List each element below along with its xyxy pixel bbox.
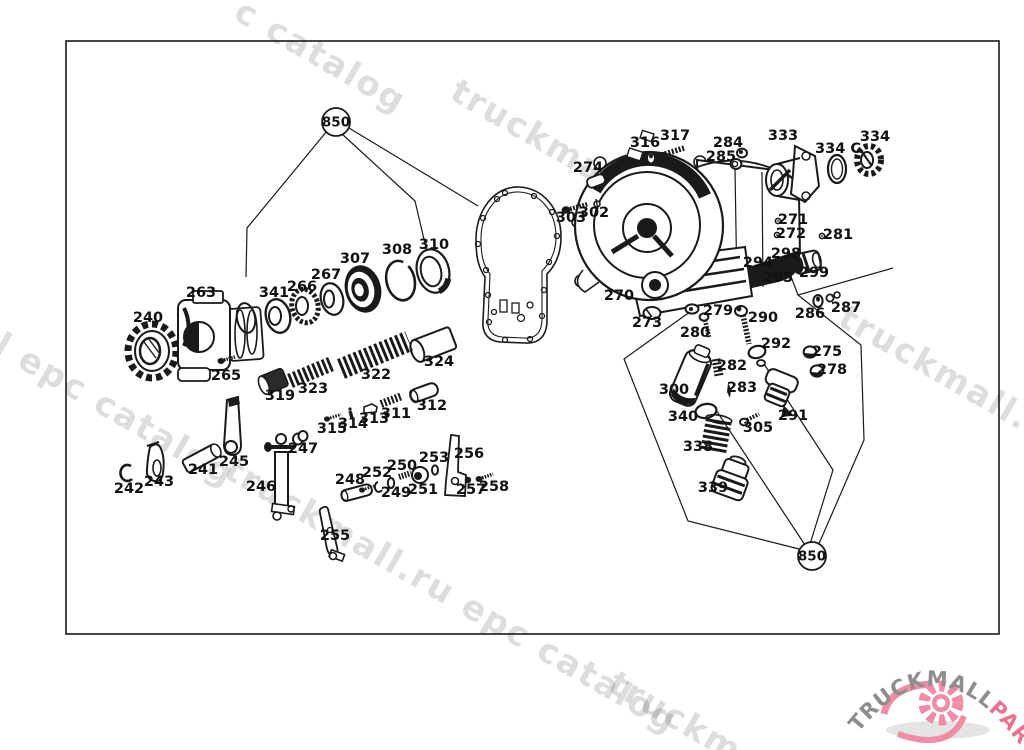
part-label-279: 279 xyxy=(703,303,733,319)
part-label-305: 305 xyxy=(743,420,773,436)
gear-hole xyxy=(937,699,946,708)
part-label-283: 283 xyxy=(727,380,757,396)
part-label-291: 291 xyxy=(778,408,808,424)
part-label-270: 270 xyxy=(604,288,634,304)
part-label-316: 316 xyxy=(630,135,660,151)
part-label-247: 247 xyxy=(288,441,318,457)
kit-ref-number: 850 xyxy=(322,115,350,131)
kit-ref-bubble-0: 850 xyxy=(322,108,350,136)
part-307 xyxy=(340,261,387,316)
part-label-273: 273 xyxy=(632,315,662,331)
part-label-255: 255 xyxy=(320,528,350,544)
part-310 xyxy=(412,246,454,296)
part-label-311: 311 xyxy=(381,406,411,422)
part-322 xyxy=(341,341,409,369)
part-label-258: 258 xyxy=(479,479,509,495)
part-label-280: 280 xyxy=(680,325,710,341)
part-label-324: 324 xyxy=(424,354,454,370)
part-label-295: 295 xyxy=(763,270,793,286)
part-label-272: 272 xyxy=(776,226,806,242)
epc-catalog-page: c catalogtruckmall.ru epcl epc catalogtr… xyxy=(0,0,1024,750)
part-label-281: 281 xyxy=(823,227,853,243)
watermark-text-4: truckmall.ru e xyxy=(832,297,1024,481)
part-label-246: 246 xyxy=(246,479,276,495)
part-279 xyxy=(686,304,699,313)
part-label-319: 319 xyxy=(265,388,295,404)
part-label-275: 275 xyxy=(812,344,842,360)
part-311 xyxy=(381,396,402,404)
part-label-334C: 334 C xyxy=(815,141,861,157)
kit-ref-bubble-1: 850 xyxy=(798,542,826,570)
watermark-text-5: truckmall xyxy=(602,663,795,750)
part-gasket-plate xyxy=(476,187,562,343)
part-label-245: 245 xyxy=(219,454,249,470)
part-242 xyxy=(120,465,132,481)
part-label-243: 243 xyxy=(144,474,174,490)
part-label-333: 333 xyxy=(768,128,798,144)
part-323 xyxy=(290,364,331,381)
kit-ref-number: 850 xyxy=(798,549,826,565)
part-label-338: 338 xyxy=(683,439,713,455)
part-label-263: 263 xyxy=(186,285,216,301)
part-label-267: 267 xyxy=(311,267,341,283)
part-label-300: 300 xyxy=(659,382,689,398)
part-label-274: 274 xyxy=(573,160,603,176)
part-label-292: 292 xyxy=(761,336,791,352)
part-label-250: 250 xyxy=(387,458,417,474)
part-334c xyxy=(828,155,846,183)
part-label-341: 341 xyxy=(259,285,289,301)
part-label-312: 312 xyxy=(417,398,447,414)
part-308 xyxy=(382,258,419,304)
part-label-286: 286 xyxy=(795,306,825,322)
part-label-310: 310 xyxy=(419,237,449,253)
watermark-text-0: c catalog xyxy=(228,0,414,122)
part-label-251: 251 xyxy=(408,482,438,498)
part-label-248: 248 xyxy=(335,472,365,488)
part-341 xyxy=(262,297,294,336)
part-240 xyxy=(128,324,176,378)
part-label-322: 322 xyxy=(361,367,391,383)
part-label-241: 241 xyxy=(188,462,218,478)
part-label-282: 282 xyxy=(717,358,747,374)
part-label-340: 340 xyxy=(668,409,698,425)
part-label-278: 278 xyxy=(817,362,847,378)
part-label-285: 285 xyxy=(706,149,736,165)
part-label-307: 307 xyxy=(340,251,370,267)
part-253 xyxy=(432,465,438,474)
part-label-265: 265 xyxy=(211,368,241,384)
part-label-323: 323 xyxy=(298,381,328,397)
part-label-242: 242 xyxy=(114,481,144,497)
part-267 xyxy=(317,281,346,317)
part-label-287: 287 xyxy=(831,300,861,316)
part-label-253: 253 xyxy=(419,450,449,466)
part-label-334: 334 xyxy=(860,129,890,145)
part-316 xyxy=(647,153,655,164)
part-333 xyxy=(766,146,819,202)
part-245 xyxy=(224,396,241,455)
part-label-240: 240 xyxy=(133,310,163,326)
part-label-317: 317 xyxy=(660,128,690,144)
parts-diagram: c catalogtruckmall.ru epcl epc catalogtr… xyxy=(0,0,1024,750)
part-300 xyxy=(667,342,716,409)
part-label-299: 299 xyxy=(799,265,829,281)
part-label-249: 249 xyxy=(381,485,411,501)
part-label-339: 339 xyxy=(698,480,728,496)
part-label-302: 302 xyxy=(579,205,609,221)
part-label-294: 294 xyxy=(743,255,773,271)
part-label-256: 256 xyxy=(454,446,484,462)
part-label-290: 290 xyxy=(748,310,778,326)
part-label-298: 298 xyxy=(771,246,801,262)
part-label-308: 308 xyxy=(382,242,412,258)
